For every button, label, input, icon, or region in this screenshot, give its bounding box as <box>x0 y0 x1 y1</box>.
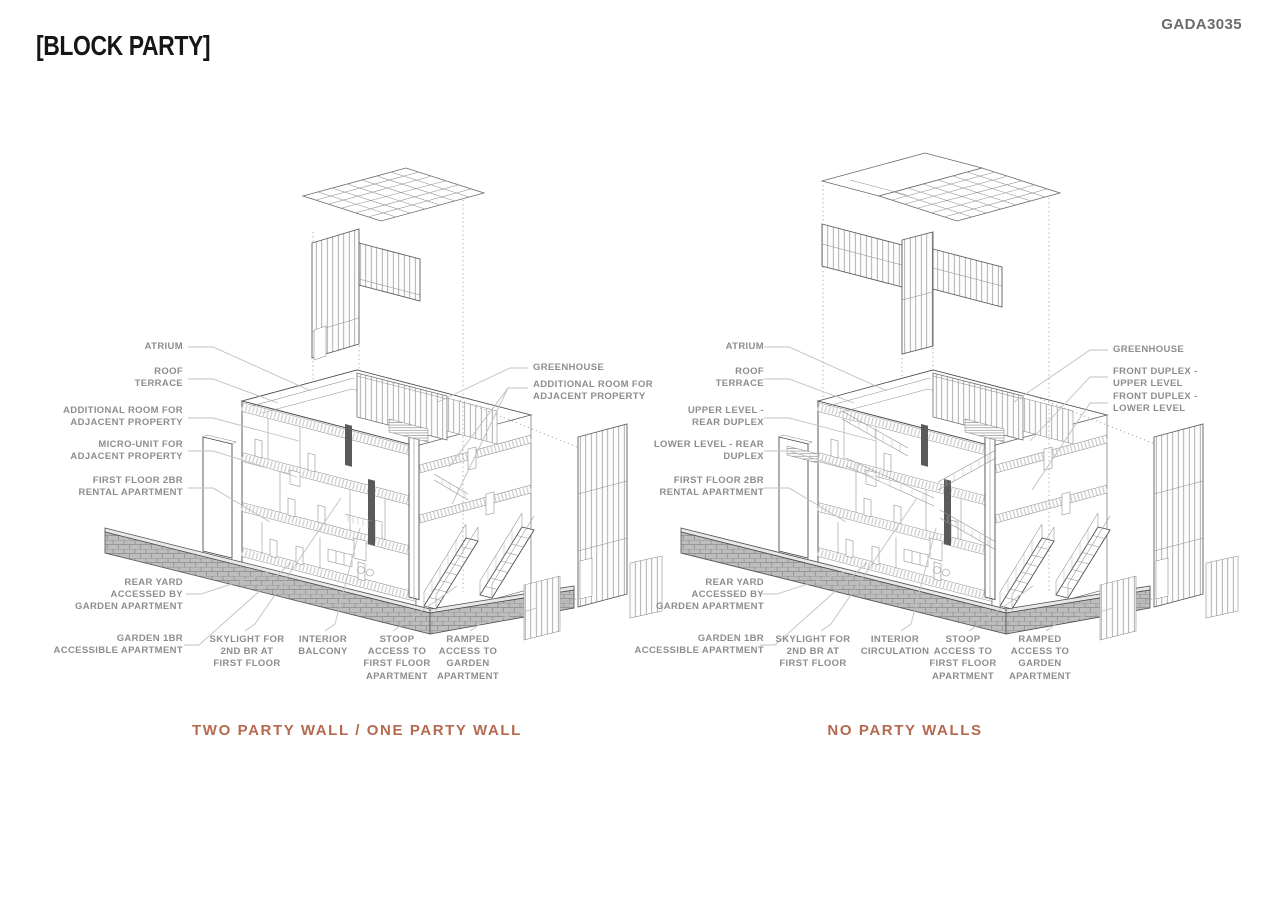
label-atrium: ATRIUM <box>614 341 764 353</box>
label-additional-room: ADDITIONAL ROOM FOR ADJACENT PROPERTY <box>33 405 183 429</box>
exploded-glazing-panels <box>822 224 1002 354</box>
label-garden-1br: GARDEN 1BR ACCESSIBLE APARTMENT <box>33 633 183 657</box>
label-ramped-access: RAMPED ACCESS TO GARDEN APARTMENT <box>413 634 523 683</box>
label-rear-yard: REAR YARD ACCESSED BY GARDEN APARTMENT <box>614 577 764 614</box>
label-upper-level-rear-duplex: UPPER LEVEL - REAR DUPLEX <box>614 405 764 429</box>
label-lower-level-rear-duplex: LOWER LEVEL - REAR DUPLEX <box>614 439 764 463</box>
label-roof-terrace: ROOF TERRACE <box>33 366 183 390</box>
exploded-glazing-panels <box>312 229 420 360</box>
skylight-grid-plane <box>822 153 1060 221</box>
label-greenhouse: GREENHOUSE <box>1113 344 1263 356</box>
caption-right-scheme: NO PARTY WALLS <box>755 722 1055 739</box>
caption-left-scheme: TWO PARTY WALL / ONE PARTY WALL <box>157 722 557 739</box>
label-front-duplex-upper: FRONT DUPLEX - UPPER LEVEL <box>1113 366 1263 390</box>
label-roof-terrace: ROOF TERRACE <box>614 366 764 390</box>
label-first-floor-2br: FIRST FLOOR 2BR RENTAL APARTMENT <box>33 475 183 499</box>
label-ramped-access: RAMPED ACCESS TO GARDEN APARTMENT <box>985 634 1095 683</box>
board-title: [BLOCK PARTY] <box>36 30 210 62</box>
label-atrium: ATRIUM <box>33 341 183 353</box>
left-diagram-drawing <box>105 168 662 645</box>
left-building <box>105 370 662 640</box>
label-rear-yard: REAR YARD ACCESSED BY GARDEN APARTMENT <box>33 577 183 614</box>
presentation-board: [BLOCK PARTY] GADA3035 ATRIUM ROOF TERRA… <box>0 0 1273 900</box>
label-micro-unit: MICRO-UNIT FOR ADJACENT PROPERTY <box>33 439 183 463</box>
label-garden-1br: GARDEN 1BR ACCESSIBLE APARTMENT <box>614 633 764 657</box>
skylight-grid-plane <box>303 168 484 221</box>
project-code: GADA3035 <box>1152 16 1242 33</box>
label-first-floor-2br: FIRST FLOOR 2BR RENTAL APARTMENT <box>614 475 764 499</box>
label-front-duplex-lower: FRONT DUPLEX - LOWER LEVEL <box>1113 391 1263 415</box>
